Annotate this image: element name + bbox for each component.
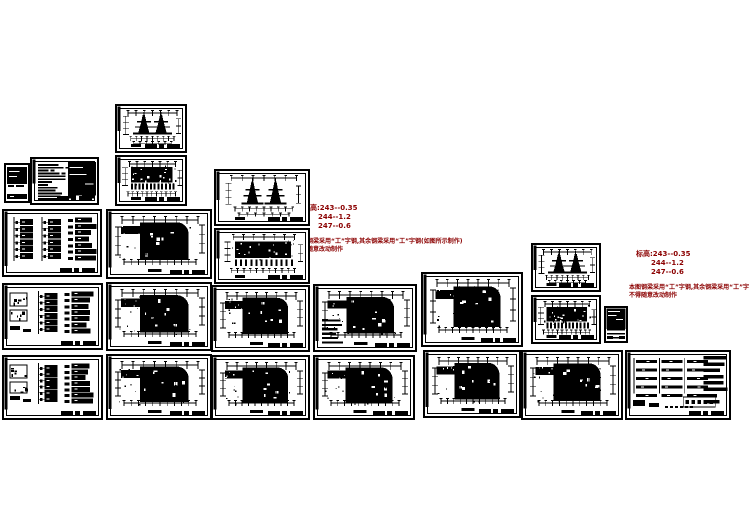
sheet-drawing: [421, 272, 523, 347]
drawing-sheet-general-notes[interactable]: [30, 157, 99, 205]
drawing-sheet-elev-lower-small[interactable]: [115, 155, 187, 206]
drawing-sheet-system-diagram-3[interactable]: [2, 355, 103, 420]
drawing-sheet-title-block-sheet[interactable]: [604, 306, 628, 343]
sheet-drawing: [115, 155, 187, 206]
sheet-drawing: [2, 355, 103, 420]
drawing-sheet-elev-upper-right[interactable]: [531, 243, 601, 292]
drawing-sheet-system-diagram-2[interactable]: [2, 283, 103, 350]
sheet-drawing: [2, 209, 102, 277]
note-text: 本图钢梁采用“工”字钢,其余钢梁采用“工”字钢(如图所示制作): [295, 238, 463, 246]
note-line: 247--0.6: [636, 268, 749, 277]
note-line: 244--1.2: [303, 213, 463, 222]
sheet-drawing: [214, 169, 310, 226]
sheet-drawing: [2, 283, 103, 350]
sheet-drawing: [115, 104, 187, 153]
drawing-sheet-elev-upper-mid[interactable]: [214, 169, 310, 226]
drawing-sheet-floor-plan-4[interactable]: [211, 285, 310, 352]
drawing-sheet-floor-plan-2[interactable]: [106, 282, 212, 351]
drawing-sheet-floor-plan-3[interactable]: [106, 354, 212, 420]
drawing-sheet-floor-plan-7[interactable]: [313, 355, 415, 420]
drawing-sheet-elev-lower-right[interactable]: [531, 295, 601, 344]
sheet-drawing: [214, 228, 310, 284]
drawing-sheet-floor-plan-6[interactable]: [313, 284, 417, 352]
note-text: 不得随意改动制作: [295, 246, 463, 254]
sheet-drawing: [313, 355, 415, 420]
elevation-note-right: 标高:243--0.35 244--1.2 247--0.6 本图钢梁采用“工”…: [636, 250, 749, 299]
drawing-sheet-floor-plan-5[interactable]: [211, 355, 310, 420]
note-line: 247--0.6: [303, 222, 463, 231]
note-line: 标高:243--0.35: [303, 204, 463, 213]
note-text: 不得随意改动制作: [629, 292, 749, 300]
drawing-sheet-floor-plan-10[interactable]: [521, 350, 623, 420]
sheet-drawing: [106, 209, 212, 279]
note-line: 244--1.2: [636, 259, 749, 268]
sheet-drawing: [531, 243, 601, 292]
sheet-drawing: [106, 282, 212, 351]
drawing-sheet-spec-table[interactable]: [4, 163, 30, 203]
drawing-sheet-elev-upper-small[interactable]: [115, 104, 187, 153]
sheet-drawing: [30, 157, 99, 205]
drawing-sheet-floor-plan-9[interactable]: [423, 350, 521, 418]
drawing-sheet-system-diagram-1[interactable]: [2, 209, 102, 277]
sheet-drawing: [106, 354, 212, 420]
sheet-drawing: [4, 163, 30, 203]
sheet-drawing: [211, 355, 310, 420]
sheet-drawing: [604, 306, 628, 343]
drawing-sheet-floor-plan-1[interactable]: [106, 209, 212, 279]
elevation-note-left: 标高:243--0.35 244--1.2 247--0.6 本图钢梁采用“工”…: [303, 204, 463, 253]
drawing-sheet-elev-lower-mid[interactable]: [214, 228, 310, 284]
sheet-drawing: [625, 350, 731, 420]
sheet-drawing: [423, 350, 521, 418]
drawing-sheet-system-diagram-4[interactable]: [625, 350, 731, 420]
cad-canvas[interactable]: 标高:243--0.35 244--1.2 247--0.6 本图钢梁采用“工”…: [0, 0, 749, 530]
sheet-drawing: [313, 284, 417, 352]
sheet-drawing: [211, 285, 310, 352]
sheet-drawing: [521, 350, 623, 420]
drawing-sheet-floor-plan-8[interactable]: [421, 272, 523, 347]
note-text: 本图钢梁采用“工”字钢,其余钢梁采用“工”字钢(如图所示制作): [629, 284, 749, 292]
sheet-drawing: [531, 295, 601, 344]
note-line: 标高:243--0.35: [636, 250, 749, 259]
